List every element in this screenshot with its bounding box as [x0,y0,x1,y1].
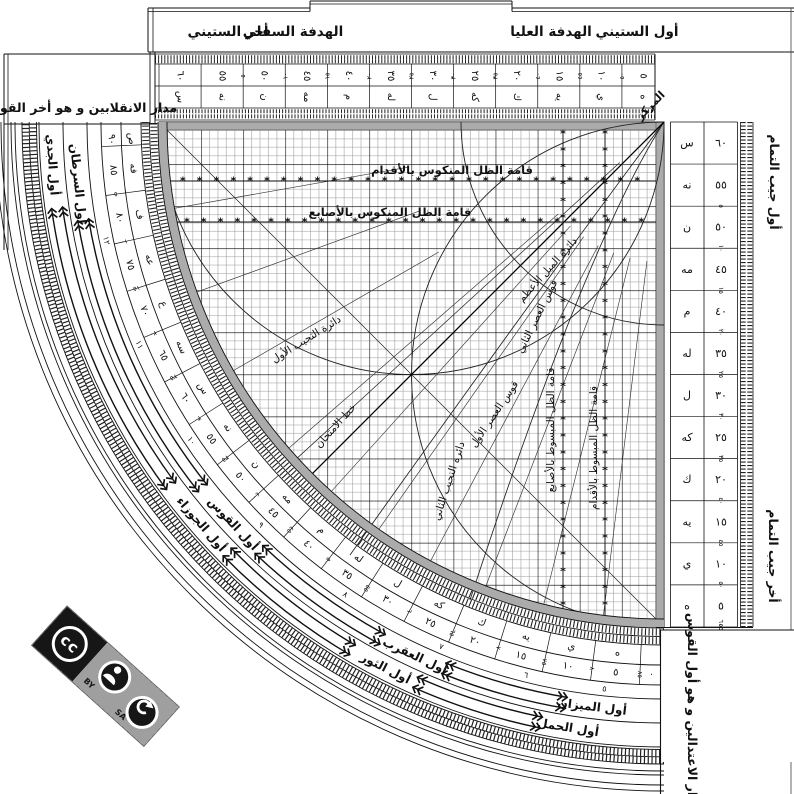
cosine-abjad: يه [683,515,692,528]
star-mark: * [602,481,608,494]
sine-quadrant-diagram: ****************************************… [0,0,794,794]
sine-abjad: يه [553,93,564,101]
star-mark: * [560,515,566,528]
sine-abjad: ن [259,93,270,100]
cosine-abjad: مه [681,263,693,276]
star-mark: * [264,175,270,188]
star-mark: * [537,216,543,229]
star-mark: * [234,216,240,229]
star-mark: * [602,329,608,342]
sine-complement: ٣٥ [492,72,500,79]
star-mark: * [560,464,566,477]
arc-scale-number: ٥ [613,667,619,678]
cosine-number: ١٠ [715,557,727,570]
arc-scale-complement: ٨٥ [636,671,644,679]
cosine-complement: ٥ [717,204,725,208]
star-mark: * [298,175,304,188]
cosine-abjad: ي [683,557,692,570]
star-mark: * [602,548,608,561]
sine-number: ١٥ [553,71,564,82]
cosine-complement: ٥٠ [717,581,725,588]
arc-scale-abjad: فه [127,163,139,174]
star-mark: * [560,481,566,494]
star-mark: * [602,380,608,393]
star-mark: * [560,296,566,309]
star-mark: * [281,175,287,188]
cosine-abjad: ه [684,599,690,612]
star-mark: * [560,380,566,393]
star-mark: * [602,599,608,612]
arc-scale-abjad: ف [133,208,146,220]
star-mark: * [602,195,608,208]
sine-complement: ٢٠ [365,73,373,80]
star-mark: * [560,397,566,410]
star-mark: * [560,161,566,174]
cosine-number: ٤٠ [715,305,727,318]
star-mark: * [230,175,236,188]
sine-abjad: ك [511,93,522,101]
star-mark: * [560,212,566,225]
arc-scale-abjad: ه [614,647,620,658]
star-mark: * [560,363,566,376]
star-mark: * [602,565,608,578]
label-inverted-shadow-digits: قامة الظل المنكوس بالأصابع [309,205,472,220]
star-mark: * [602,128,608,141]
label-first-sixty: أول الستيني [595,23,678,40]
star-mark: * [197,175,203,188]
star-mark: * [560,565,566,578]
star-mark: * [184,216,190,229]
star-mark: * [180,175,186,188]
sine-abjad: مه [301,92,312,103]
sine-number: ٢٠ [511,71,522,82]
hour-number: ١٢ [101,235,112,245]
sine-number: ٥ [637,73,648,78]
star-mark: * [602,346,608,359]
star-mark: * [331,175,337,188]
star-mark: * [602,430,608,443]
sine-number: ٥٠ [259,71,270,82]
cosine-abjad: س [680,137,693,150]
label-first-cosine: أول جيب التمام [766,134,783,229]
star-mark: * [602,161,608,174]
label-extended-shadow-digits: قامة الظل المبسوط بالأصابع [544,368,557,493]
cc-icon-text: cc [57,632,82,656]
star-mark: * [602,212,608,225]
arc-scale-abjad: ص [126,133,137,145]
cosine-complement: ٢٥ [717,371,725,378]
label-upper-sight: الهدفة العليا [510,24,592,40]
cosine-number: ٥٠ [715,221,727,234]
sine-number: ١٠ [595,71,606,82]
star-mark: * [533,175,539,188]
star-mark: * [521,216,527,229]
star-mark: * [560,195,566,208]
star-mark: * [560,548,566,561]
star-mark: * [560,414,566,427]
label-last-sixty: أخر الستيني [187,23,268,40]
cosine-number: ٤٥ [715,263,727,276]
sine-number: ٣٠ [427,71,438,82]
arc-scale-number: ٨٠ [113,212,126,224]
star-mark: * [302,216,308,229]
star-mark: * [602,515,608,528]
star-mark: * [560,498,566,511]
arc-scale-number: ١٠ [562,660,574,673]
star-mark: * [571,216,577,229]
cosine-number: ٢٠ [715,473,727,486]
sine-abjad: م [343,94,354,100]
star-mark: * [602,531,608,544]
star-mark: * [315,175,321,188]
star-mark: * [285,216,291,229]
sine-abjad: له [385,93,396,101]
star-mark: * [247,175,253,188]
star-mark: * [602,178,608,191]
cosine-complement: ٤٠ [717,497,725,504]
cosine-abjad: ن [683,221,691,234]
star-mark: * [602,245,608,258]
cosine-number: ٣٥ [715,347,727,360]
label-extended-shadow-feet: قامة الظل المبسوط بالأقدام [587,386,600,510]
cosine-abjad: م [684,305,691,318]
star-mark: * [201,216,207,229]
star-mark: * [602,313,608,326]
star-mark: * [567,175,573,188]
label-equinox-orbit-note: مدار الاعتدالين و هو أول القوس [685,613,701,794]
sine-complement: ٢٥ [408,72,416,79]
star-mark: * [560,329,566,342]
cosine-number: ٥٥ [715,179,727,192]
star-mark: * [560,582,566,595]
star-mark: * [560,447,566,460]
sine-complement: ٥٠ [618,73,626,80]
star-mark: * [560,178,566,191]
arc-scale-number: ٨٥ [107,164,119,176]
cosine-abjad: ك [682,473,691,486]
star-mark: * [602,447,608,460]
cosine-number: ٢٥ [715,431,727,444]
cosine-complement: ٣٠ [717,413,725,420]
sine-number: ٦٠ [175,71,186,82]
star-mark: * [487,216,493,229]
cosine-complement: ٢٠ [717,329,725,336]
sine-complement: ١٥ [323,72,331,79]
star-mark: * [602,397,608,410]
star-mark: * [560,128,566,141]
star-mark: * [602,296,608,309]
cosine-complement: ١٥ [717,287,725,294]
sine-abjad: كه [469,92,480,102]
cosine-complement: ٤٥ [717,539,725,546]
cosine-complement: ١٠ [717,245,725,252]
cosine-abjad: له [682,347,691,360]
cc-icon: cc [44,619,95,670]
sine-number: ٢٥ [469,71,480,82]
label-last-cosine: أخر جيب التمام [765,509,782,602]
star-mark: * [602,144,608,157]
star-mark: * [218,216,224,229]
sine-number: ٥٥ [217,71,228,82]
sine-complement: ٥ [239,74,247,78]
star-mark: * [251,216,257,229]
label-inverted-shadow-feet: قامة الظل المنكوس بالأقدام [371,163,533,178]
star-mark: * [268,216,274,229]
star-mark: * [602,262,608,275]
star-mark: * [584,175,590,188]
star-mark: * [504,216,510,229]
cosine-complement: ٦٠ [717,620,725,627]
sine-abjad: نه [217,93,228,101]
sine-complement: ٤٥ [576,72,584,79]
star-mark: * [622,216,628,229]
star-mark: * [602,279,608,292]
star-mark: * [602,363,608,376]
sine-complement: ٣٠ [450,73,458,80]
by-label: BY [82,676,97,690]
star-mark: * [602,464,608,477]
cosine-abjad: كه [681,431,693,444]
star-mark: * [560,228,566,241]
sine-complement: ١٠ [281,73,289,80]
cosine-abjad: ل [683,389,691,402]
star-mark: * [214,175,220,188]
sine-abjad: ي [595,93,606,101]
arc-scale-number: ٩٠ [106,134,117,145]
sine-complement: ٤٠ [534,73,542,80]
star-mark: * [348,175,354,188]
star-mark: * [602,498,608,511]
star-mark: * [550,175,556,188]
sine-abjad: ل [427,93,438,100]
label-solstice-orbit-note: مدار الانقلابين و هو أخر القوس [0,99,177,115]
cosine-number: ٥ [718,599,724,612]
cosine-abjad: نه [683,179,692,192]
star-mark: * [560,430,566,443]
star-mark: * [602,228,608,241]
sine-number: ٤٥ [301,71,312,82]
arc-scale-zero: ٠ [649,670,654,680]
cosine-complement: ٣٥ [717,455,725,462]
star-mark: * [560,279,566,292]
star-mark: * [588,216,594,229]
star-mark: * [638,216,644,229]
sine-number: ٣٥ [385,71,396,82]
star-mark: * [602,582,608,595]
star-mark: * [560,531,566,544]
cosine-number: ٦٠ [715,137,727,150]
star-mark: * [560,346,566,359]
star-mark: * [602,414,608,427]
star-mark: * [618,175,624,188]
cosine-number: ٣٠ [715,389,727,402]
cosine-number: ١٥ [715,515,727,528]
star-mark: * [560,144,566,157]
star-mark: * [560,313,566,326]
arc-scale-complement: ٨٠ [587,666,596,674]
sine-number: ٤٠ [343,71,354,82]
star-mark: * [634,175,640,188]
